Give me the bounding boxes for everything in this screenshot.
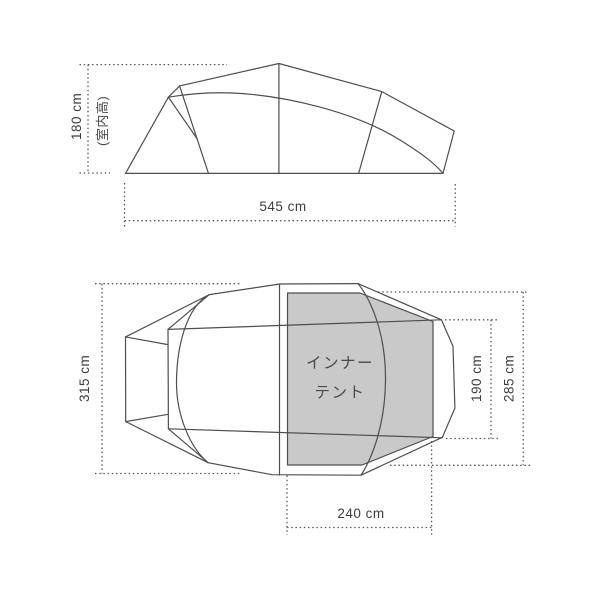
svg-text:インナー: インナー (306, 355, 374, 372)
svg-text:285 cm: 285 cm (502, 355, 517, 402)
svg-text:240 cm: 240 cm (337, 506, 384, 521)
svg-text:180 cm: 180 cm (69, 93, 84, 140)
svg-text:190 cm: 190 cm (469, 355, 484, 402)
svg-text:(室内高): (室内高) (95, 96, 110, 146)
svg-text:545 cm: 545 cm (259, 199, 306, 214)
svg-text:テント: テント (314, 385, 365, 402)
svg-text:315 cm: 315 cm (77, 355, 92, 402)
